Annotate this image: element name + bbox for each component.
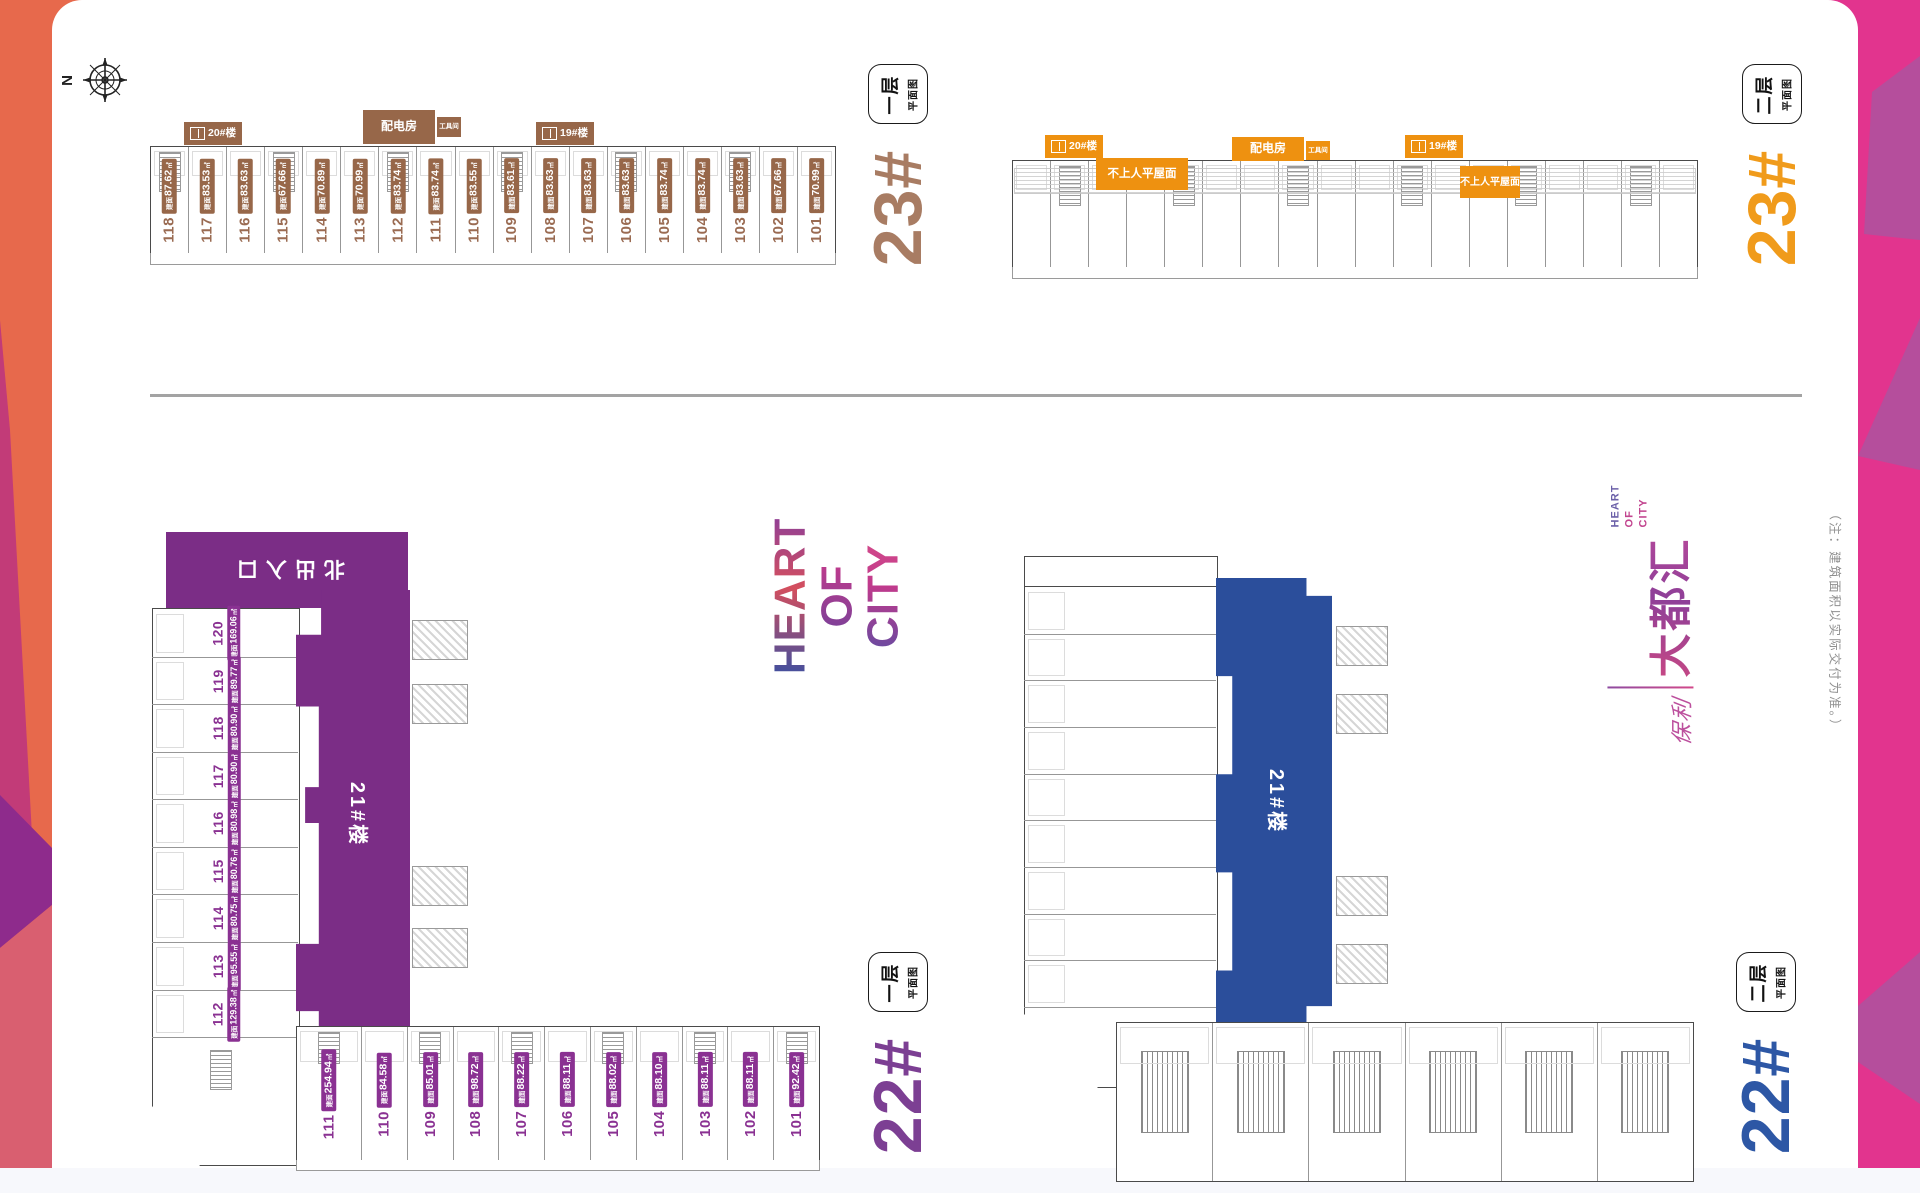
area-unit: ㎡ xyxy=(232,944,239,951)
unit-area: 70.99 xyxy=(811,169,822,195)
floor-badge: 一层 平面图 xyxy=(868,952,928,1012)
floor-type: 平面图 xyxy=(905,962,920,1002)
unit-area: 88.10 xyxy=(654,1063,665,1089)
shop-cell xyxy=(1024,728,1216,775)
unit-area: 83.55 xyxy=(469,169,480,195)
unit-area-chip: 建面84.58㎡ xyxy=(377,1052,392,1108)
area-unit: ㎡ xyxy=(232,754,239,761)
roof-stub xyxy=(412,684,468,724)
floor-type: 平面图 xyxy=(1773,962,1788,1002)
floor-badge: 二层 平面图 xyxy=(1742,64,1802,124)
unit-cell: 108 建面98.72㎡ xyxy=(454,1027,500,1161)
unit-number: 107 xyxy=(580,216,597,243)
unit-cell: 101 建面70.99㎡ xyxy=(798,147,835,253)
area-prefix: 建面 xyxy=(321,197,328,210)
area-prefix: 建面 xyxy=(612,1090,619,1103)
unit-area-chip: 建面98.72㎡ xyxy=(469,1051,484,1107)
unit-area-chip: 建面83.55㎡ xyxy=(467,158,482,214)
shop-column xyxy=(1024,588,1216,1008)
area-prefix: 建面 xyxy=(511,196,518,209)
shop-cell xyxy=(1024,681,1216,728)
area-unit: ㎡ xyxy=(232,609,239,616)
unit-cell: 116 建面80.98㎡ xyxy=(152,800,298,848)
shop-row xyxy=(1117,1023,1693,1181)
rounded-corner-right xyxy=(1828,0,1858,30)
area-prefix: 建面 xyxy=(701,196,708,209)
unit-cell: 102 建面67.66㎡ xyxy=(760,147,798,253)
area-prefix: 建面 xyxy=(475,1090,482,1103)
stairs-icon xyxy=(159,152,181,192)
heart-of-city-art: HEART OF CITY xyxy=(750,496,925,696)
unit-area: 80.98 xyxy=(229,809,238,832)
unit-cell: 111 建面83.74㎡ xyxy=(417,147,455,253)
area-prefix: 建面 xyxy=(232,928,239,941)
unit-area: 92.42 xyxy=(791,1063,802,1089)
unit-area-chip: 建面88.11㎡ xyxy=(744,1052,759,1107)
area-unit: ㎡ xyxy=(244,162,251,169)
roof-stub xyxy=(412,620,468,660)
unit-cell: 102 建面88.11㎡ xyxy=(728,1027,774,1161)
area-prefix: 建面 xyxy=(232,833,239,846)
plan-23-floor1: 20#楼 配电房 工具间 19#楼 118 建面87.62㎡ 117 建面83.… xyxy=(150,110,834,268)
shop-cell xyxy=(1406,1023,1502,1181)
area-unit: ㎡ xyxy=(232,706,239,713)
floor-name: 一层 xyxy=(877,962,903,1002)
unit-area-chip: 建面83.63㎡ xyxy=(238,158,253,214)
unit-number: 104 xyxy=(651,1110,668,1137)
floor-badge: 二层 平面图 xyxy=(1736,952,1796,1012)
unit-number: 107 xyxy=(513,1110,530,1137)
shop-cell xyxy=(1024,961,1216,1008)
unit-cell: 113 建面95.55㎡ xyxy=(152,943,298,991)
annotation-roof-left: 不上人平屋面 xyxy=(1096,158,1188,190)
logo-en-line-3: CITY xyxy=(1638,485,1650,528)
entrance-label: 北出入口 xyxy=(229,555,345,585)
unit-cell: 107 建面83.63㎡ xyxy=(570,147,608,253)
roof-stub xyxy=(1336,694,1388,734)
side-unit-column: 120 建面169.06㎡ 119 建面89.77㎡ 118 建面80.90㎡ … xyxy=(152,610,298,1038)
area-unit: ㎡ xyxy=(435,162,442,169)
logo-en-line-2: OF xyxy=(1624,485,1636,528)
unit-number: 108 xyxy=(468,1110,485,1137)
unit-area: 98.72 xyxy=(471,1063,482,1089)
area-prefix: 建面 xyxy=(383,1091,390,1104)
unit-number: 119 xyxy=(210,669,226,693)
unit-cell: 109 建面83.61㎡ xyxy=(494,147,532,253)
heart-line-1: HEART xyxy=(768,518,815,675)
stairs-icon xyxy=(1333,1051,1381,1133)
unit-area: 83.63 xyxy=(583,169,594,195)
unit-number: 105 xyxy=(605,1110,622,1137)
unit-number: 109 xyxy=(504,216,521,243)
unit-cell: 104 建面83.74㎡ xyxy=(684,147,722,253)
stairs-icon xyxy=(1429,1051,1477,1133)
stairs-icon xyxy=(1621,1051,1669,1133)
unit-area: 83.63 xyxy=(240,169,251,195)
note-text: （注：建筑面积以实际交付为准。） xyxy=(1827,507,1846,733)
area-prefix: 建面 xyxy=(587,196,594,209)
stairs-icon xyxy=(602,1032,624,1064)
unit-row: 118 建面87.62㎡ 117 建面83.53㎡ 116 建面83.63㎡ 1… xyxy=(151,147,835,253)
upper-roofline xyxy=(1024,556,1218,590)
area-prefix: 建面 xyxy=(625,196,632,209)
unit-cell: 110 建面83.55㎡ xyxy=(456,147,494,253)
unit-number: 104 xyxy=(694,216,711,243)
unit-number: 106 xyxy=(559,1110,576,1137)
disclaimer-note: （注：建筑面积以实际交付为准。） xyxy=(1820,515,1852,725)
unit-area-chip: 建面70.89㎡ xyxy=(315,158,330,214)
unit-cell: 107 建面88.22㎡ xyxy=(499,1027,545,1161)
unit-number: 106 xyxy=(618,216,635,243)
area-prefix: 建面 xyxy=(795,1090,802,1103)
unit-number: 110 xyxy=(466,217,483,243)
unit-number: 103 xyxy=(732,216,749,243)
roof-stub xyxy=(412,928,468,968)
unit-number: 115 xyxy=(210,859,226,883)
unit-cell: 110 建面84.58㎡ xyxy=(362,1027,408,1161)
shop-cell xyxy=(1024,868,1216,915)
area-prefix: 建面 xyxy=(815,196,822,209)
unit-cell: 104 建面88.10㎡ xyxy=(637,1027,683,1161)
bottom-wing-outline: 111 建面254.94㎡ 110 建面84.58㎡ 109 建面85.01㎡ … xyxy=(296,1026,820,1162)
mini-plan-icon xyxy=(1051,140,1066,153)
unit-cell: 112 建面83.74㎡ xyxy=(379,147,417,253)
shop-cell xyxy=(1309,1023,1405,1181)
area-unit: ㎡ xyxy=(359,162,366,169)
right-border-art xyxy=(1858,0,1920,1193)
area-prefix: 建面 xyxy=(168,197,175,210)
left-border-art xyxy=(0,0,52,1170)
roof-stub xyxy=(412,866,468,906)
annotation-tool-room: 工具间 xyxy=(437,117,461,137)
floor-name: 二层 xyxy=(1745,962,1771,1002)
stairs-icon xyxy=(387,152,409,192)
unit-number: 120 xyxy=(210,621,226,646)
area-prefix: 建面 xyxy=(206,197,213,210)
unit-area: 88.11 xyxy=(562,1063,573,1089)
area-prefix: 建面 xyxy=(232,880,239,893)
unit-area-chip: 建面80.76㎡ xyxy=(228,846,241,896)
unit-cell: 117 建面80.90㎡ xyxy=(152,753,298,801)
floor-type: 平面图 xyxy=(905,74,920,114)
unit-cell: 119 建面89.77㎡ xyxy=(152,658,298,706)
area-unit: ㎡ xyxy=(473,162,480,169)
unit-cell: 101 建面92.42㎡ xyxy=(774,1027,819,1161)
unit-cell: 113 建面70.99㎡ xyxy=(341,147,379,253)
area-prefix: 建面 xyxy=(663,196,670,209)
floor-name: 二层 xyxy=(1751,74,1777,114)
tower-21: 21#楼 xyxy=(296,590,410,1038)
area-prefix: 建面 xyxy=(397,197,404,210)
unit-area: 169.06 xyxy=(229,616,238,644)
unit-area-chip: 建面80.90㎡ xyxy=(228,703,241,753)
unit-number: 102 xyxy=(770,216,787,243)
stairs-icon xyxy=(1525,1051,1573,1133)
building-number: 23# xyxy=(1733,150,1811,266)
stairs-icon xyxy=(501,152,523,192)
unit-area: 89.77 xyxy=(229,666,238,689)
unit-number: 111 xyxy=(427,217,444,242)
unit-number: 114 xyxy=(210,907,226,931)
unit-area-chip: 建面129.38㎡ xyxy=(228,986,241,1041)
shop-cell xyxy=(1598,1023,1693,1181)
area-unit: ㎡ xyxy=(206,162,213,169)
unit-number: 108 xyxy=(542,216,559,243)
section-divider xyxy=(150,394,1802,397)
area-unit: ㎡ xyxy=(321,162,328,169)
bottom-wing-outline xyxy=(1116,1022,1694,1182)
area-prefix: 建面 xyxy=(473,197,480,210)
unit-area-chip: 建面89.77㎡ xyxy=(228,656,241,706)
area-prefix: 建面 xyxy=(328,1094,335,1107)
logo-name: 大都汇 xyxy=(1650,536,1694,677)
unit-area: 85.01 xyxy=(425,1063,436,1089)
shop-cell xyxy=(1213,1023,1309,1181)
unit-area: 83.74 xyxy=(431,170,442,196)
stairs-icon xyxy=(729,152,751,192)
area-prefix: 建面 xyxy=(244,197,251,210)
area-unit: ㎡ xyxy=(587,161,594,168)
shop-cell xyxy=(1024,821,1216,868)
mini-plan-icon xyxy=(1411,140,1426,153)
unit-cell: 106 建面88.11㎡ xyxy=(545,1027,591,1161)
annotation-power-room: 配电房 xyxy=(1232,137,1304,161)
mini-plan-icon xyxy=(190,127,205,140)
unit-area-chip: 建面88.11㎡ xyxy=(560,1052,575,1107)
area-unit: ㎡ xyxy=(232,849,239,856)
area-prefix: 建面 xyxy=(658,1090,665,1103)
annotation-power-room: 配电房 xyxy=(363,110,435,144)
floorplan-poster: N 20#楼 配电房 工具间 19#楼 118 建面87.62㎡ 117 xyxy=(0,0,1920,1193)
shop-cell xyxy=(1117,1023,1213,1181)
area-prefix: 建面 xyxy=(777,196,784,209)
unit-area: 83.53 xyxy=(202,169,213,195)
roof-stub xyxy=(1336,626,1388,666)
plan-23-floor2: 20#楼 不上人平屋面 配电房 工具间 19#楼 不上人平屋面 xyxy=(1012,110,1696,280)
unit-cell: 108 建面83.63㎡ xyxy=(532,147,570,253)
area-unit: ㎡ xyxy=(383,1056,390,1063)
tower-21: 21#楼 xyxy=(1216,578,1332,1024)
stairs-icon xyxy=(419,1032,441,1064)
north-label: N xyxy=(59,75,76,86)
unit-area: 80.75 xyxy=(229,904,238,927)
logo-divider xyxy=(1608,686,1694,688)
unit-number: 101 xyxy=(808,216,825,243)
annotation-roof-right: 不上人平屋面 xyxy=(1460,166,1520,198)
unit-area: 129.38 xyxy=(229,997,238,1025)
stairs-icon xyxy=(511,1032,533,1064)
unit-number: 117 xyxy=(199,217,216,243)
compass: N xyxy=(62,56,129,104)
sidewalk xyxy=(296,1160,820,1171)
stairs-icon xyxy=(273,152,295,192)
unit-cell: 105 建面83.74㎡ xyxy=(646,147,684,253)
tower-label: 21#楼 xyxy=(346,781,375,846)
unit-cell: 111 建面254.94㎡ xyxy=(297,1027,362,1161)
unit-area-chip: 建面83.63㎡ xyxy=(581,157,596,213)
roof-stub xyxy=(1336,876,1388,916)
unit-area: 88.02 xyxy=(608,1063,619,1089)
tower-label: 21#楼 xyxy=(1265,768,1294,833)
unit-area: 70.89 xyxy=(317,169,328,195)
area-unit: ㎡ xyxy=(663,161,670,168)
unit-area: 67.66 xyxy=(773,169,784,195)
area-prefix: 建面 xyxy=(232,737,239,750)
annotation-building-20: 20#楼 xyxy=(1045,135,1103,158)
annotation-building-19: 19#楼 xyxy=(1405,135,1463,158)
area-prefix: 建面 xyxy=(232,785,239,798)
unit-area-chip: 建面169.06㎡ xyxy=(228,606,241,661)
shop-cell xyxy=(1024,915,1216,962)
stairs-icon xyxy=(1141,1051,1189,1133)
unit-area: 83.63 xyxy=(545,169,556,195)
stairs-icon xyxy=(210,1050,232,1090)
unit-area-chip: 建面88.10㎡ xyxy=(652,1051,667,1107)
sidewalk xyxy=(150,253,836,265)
plan-label-22-f1: 一层 平面图 22# xyxy=(852,952,944,1166)
unit-area-chip: 建面83.74㎡ xyxy=(657,157,672,213)
floor-name: 一层 xyxy=(877,74,903,114)
unit-area: 84.58 xyxy=(379,1063,390,1089)
logo-english: HEART OF CITY xyxy=(1610,485,1650,528)
area-unit: ㎡ xyxy=(549,161,556,168)
shop-cell xyxy=(1024,635,1216,682)
area-prefix: 建面 xyxy=(429,1090,436,1103)
unit-area: 83.74 xyxy=(697,169,708,195)
area-prefix: 建面 xyxy=(704,1090,711,1103)
unit-number: 117 xyxy=(210,764,226,788)
unit-number: 114 xyxy=(313,217,330,243)
unit-area: 88.11 xyxy=(700,1063,711,1089)
area-unit: ㎡ xyxy=(566,1056,573,1063)
unit-number: 110 xyxy=(376,1111,393,1137)
plan-label-22-f2: 二层 平面图 22# xyxy=(1720,952,1812,1166)
unit-cell: 105 建面88.02㎡ xyxy=(591,1027,637,1161)
unit-cell: 117 建面83.53㎡ xyxy=(189,147,227,253)
annotation-building-19: 19#楼 xyxy=(536,122,594,145)
plan-strip: 118 建面87.62㎡ 117 建面83.53㎡ 116 建面83.63㎡ 1… xyxy=(150,146,836,254)
unit-area: 88.11 xyxy=(746,1063,757,1089)
unit-number: 113 xyxy=(210,954,226,978)
unit-area: 80.76 xyxy=(229,857,238,880)
unit-area-chip: 建面70.99㎡ xyxy=(809,157,824,213)
unit-number: 112 xyxy=(389,217,406,243)
unit-cell: 120 建面169.06㎡ xyxy=(152,610,298,658)
logo-en-line-1: HEART xyxy=(1610,485,1622,528)
unit-area-chip: 建面70.99㎡ xyxy=(353,158,368,214)
unit-number: 118 xyxy=(210,716,226,740)
unit-area: 83.74 xyxy=(659,169,670,195)
unit-area-chip: 建面67.66㎡ xyxy=(771,157,786,213)
annotation-tool-room: 工具间 xyxy=(1306,141,1330,160)
unit-area-chip: 建面83.53㎡ xyxy=(200,158,215,214)
area-prefix: 建面 xyxy=(232,975,239,988)
unit-cell: 114 建面70.89㎡ xyxy=(303,147,341,253)
area-unit: ㎡ xyxy=(232,659,239,666)
building-number: 22# xyxy=(859,1038,937,1154)
sidewalk xyxy=(1012,267,1698,279)
unit-number: 102 xyxy=(742,1110,759,1137)
area-prefix: 建面 xyxy=(232,645,239,658)
stairs-icon xyxy=(694,1032,716,1064)
area-unit: ㎡ xyxy=(232,989,239,996)
unit-area: 95.55 xyxy=(229,952,238,975)
unit-area: 88.22 xyxy=(517,1063,528,1089)
unit-cell: 109 建面85.01㎡ xyxy=(408,1027,454,1161)
rounded-corner-left xyxy=(52,0,82,30)
stairs-icon xyxy=(1237,1051,1285,1133)
plan-label-23-f1: 一层 平面图 23# xyxy=(852,64,944,278)
area-prefix: 建面 xyxy=(282,197,289,210)
area-prefix: 建面 xyxy=(750,1090,757,1103)
compass-rose-icon xyxy=(81,56,129,104)
heart-line-3: CITY xyxy=(861,544,908,648)
unit-number: 109 xyxy=(422,1110,439,1137)
building-number: 22# xyxy=(1727,1038,1805,1154)
annotation-building-20: 20#楼 xyxy=(184,122,242,145)
area-prefix: 建面 xyxy=(549,196,556,209)
unit-area-chip: 建面83.74㎡ xyxy=(695,157,710,213)
unit-cell: 116 建面83.63㎡ xyxy=(227,147,265,253)
brand-logo: 保利 大都汇 HEART OF CITY xyxy=(1548,495,1753,735)
unit-number: 103 xyxy=(696,1110,713,1137)
unit-area-chip: 建面83.63㎡ xyxy=(543,157,558,213)
area-unit: ㎡ xyxy=(815,161,822,168)
area-unit: ㎡ xyxy=(701,161,708,168)
unit-number: 116 xyxy=(210,811,226,835)
area-prefix: 建面 xyxy=(232,1025,239,1038)
area-unit: ㎡ xyxy=(232,802,239,809)
unit-area: 70.99 xyxy=(355,169,366,195)
area-prefix: 建面 xyxy=(435,197,442,210)
roof-stub xyxy=(1336,944,1388,984)
bottom-unit-row: 111 建面254.94㎡ 110 建面84.58㎡ 109 建面85.01㎡ … xyxy=(297,1027,819,1161)
unit-number: 105 xyxy=(656,216,673,243)
area-prefix: 建面 xyxy=(566,1090,573,1103)
plan-label-23-f2: 二层 平面图 23# xyxy=(1726,64,1818,278)
shop-cell xyxy=(1024,588,1216,635)
unit-number: 111 xyxy=(321,1114,338,1139)
area-unit: ㎡ xyxy=(777,161,784,168)
unit-number: 101 xyxy=(788,1110,805,1137)
unit-cell: 112 建面129.38㎡ xyxy=(152,991,298,1039)
unit-cell: 118 建面80.90㎡ xyxy=(152,705,298,753)
shop-cell xyxy=(1502,1023,1598,1181)
building-number: 23# xyxy=(859,150,937,266)
plan-22-floor1: 北出入口 120 建面169.06㎡ 119 建面89.77㎡ 118 建面80… xyxy=(150,528,842,1173)
unit-area-chip: 建面95.55㎡ xyxy=(228,941,241,991)
area-prefix: 建面 xyxy=(232,690,239,703)
heart-line-2: OF xyxy=(814,564,861,627)
unit-area-chip: 建面83.74㎡ xyxy=(429,158,444,214)
unit-cell: 115 建面67.66㎡ xyxy=(265,147,303,253)
area-unit: ㎡ xyxy=(475,1055,482,1062)
unit-cell: 106 建面83.63㎡ xyxy=(608,147,646,253)
area-unit: ㎡ xyxy=(750,1056,757,1063)
stairs-icon xyxy=(615,152,637,192)
stairs-icon xyxy=(318,1032,340,1064)
unit-cell: 114 建面80.75㎡ xyxy=(152,895,298,943)
shop-cell xyxy=(1024,775,1216,822)
unit-number: 113 xyxy=(351,217,368,243)
stairs-icon xyxy=(786,1032,808,1064)
unit-cell: 103 建面88.11㎡ xyxy=(683,1027,729,1161)
unit-area-chip: 建面80.98㎡ xyxy=(228,799,241,849)
unit-cell: 118 建面87.62㎡ xyxy=(151,147,189,253)
unit-area-chip: 建面80.75㎡ xyxy=(228,894,241,944)
floor-type: 平面图 xyxy=(1779,74,1794,114)
area-unit: ㎡ xyxy=(232,897,239,904)
